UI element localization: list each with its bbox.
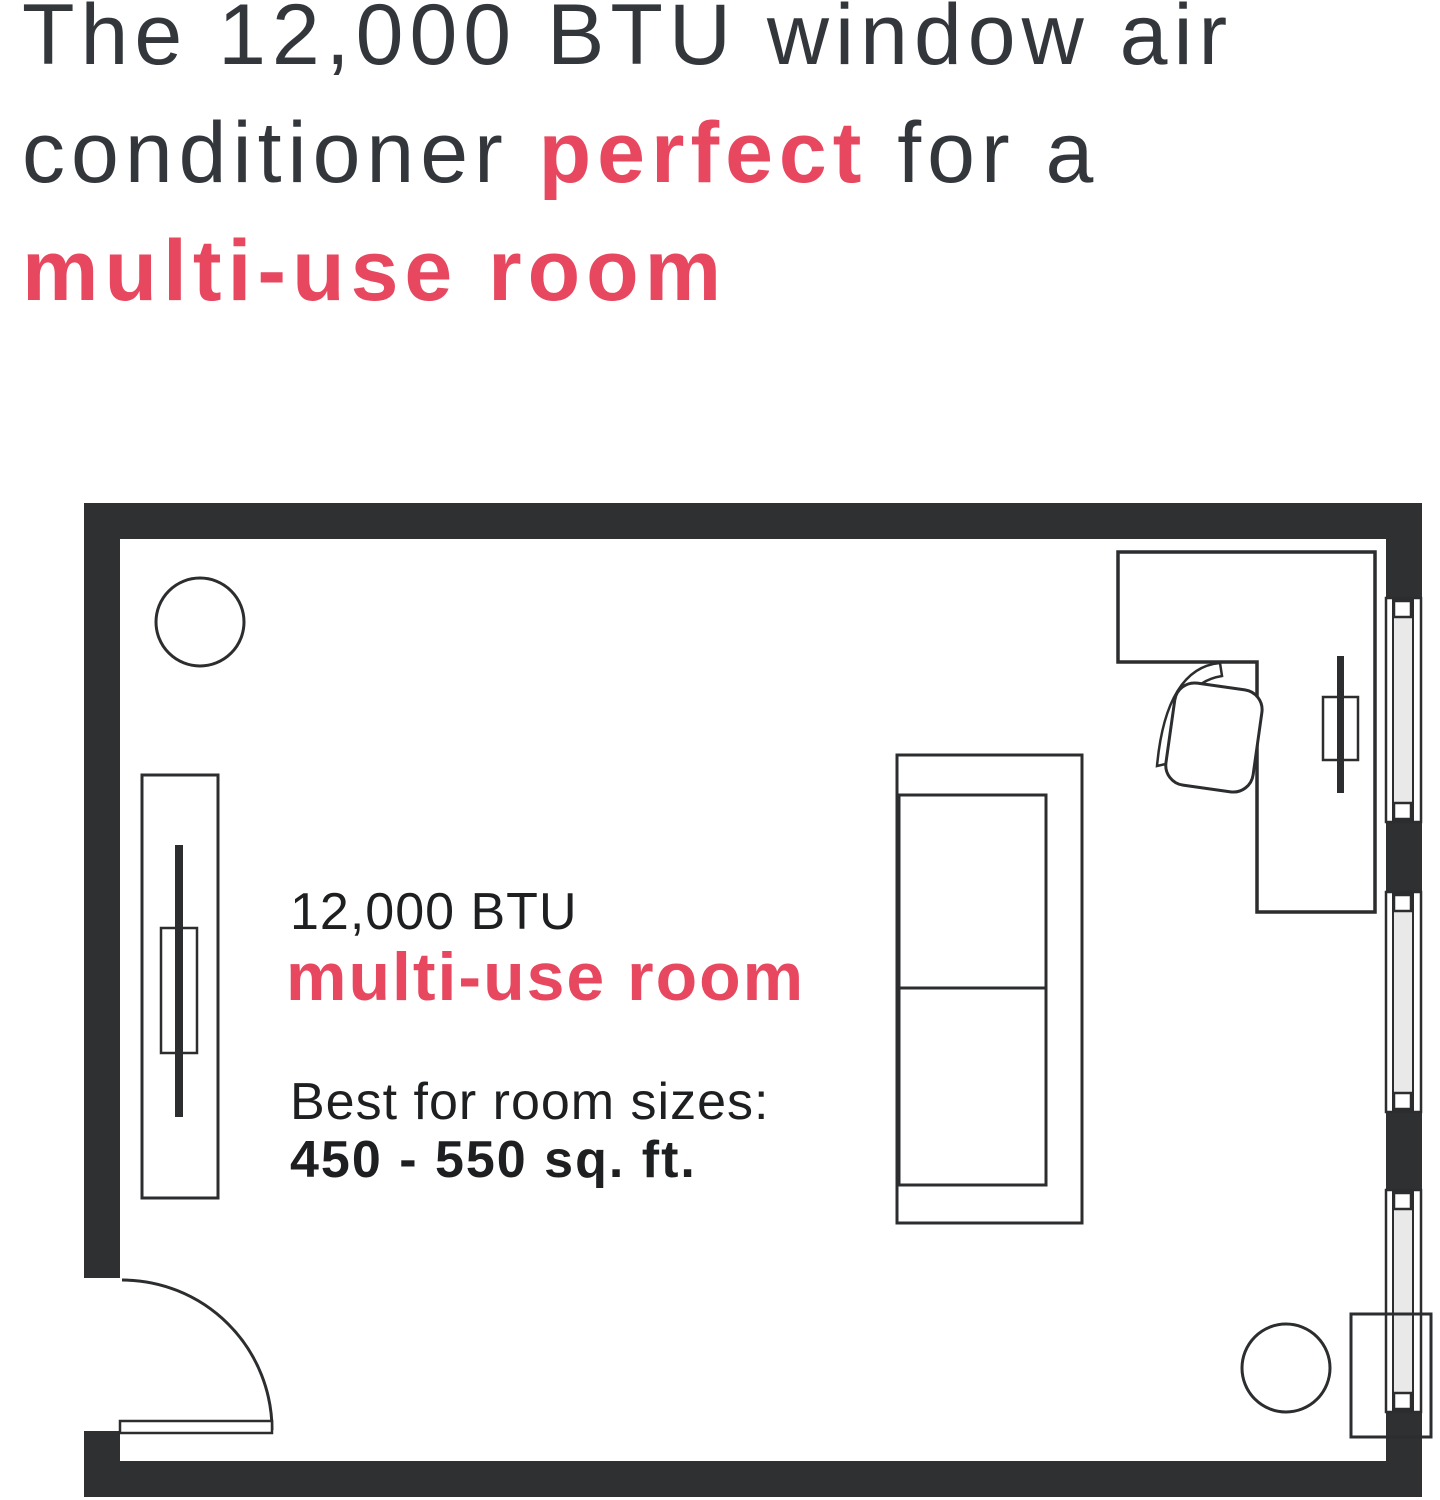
window-1 — [1386, 598, 1421, 822]
window-stop-bottom — [1394, 803, 1411, 819]
window-3 — [1386, 1190, 1421, 1412]
wall-right-bottom — [1386, 1412, 1422, 1497]
sofa — [897, 755, 1082, 1223]
media-console — [142, 775, 218, 1198]
window-glass — [1393, 1191, 1413, 1411]
label-room-type: multi-use room — [286, 938, 805, 1016]
door-leaf — [120, 1421, 272, 1433]
window-stop-bottom — [1394, 1093, 1411, 1109]
desk-area — [1118, 552, 1375, 912]
window-glass — [1393, 599, 1413, 821]
desk-chair-seat — [1163, 680, 1264, 794]
label-btu: 12,000 BTU — [290, 882, 578, 942]
tv-screen — [175, 845, 183, 1117]
window-2 — [1386, 892, 1421, 1112]
window-stop-top — [1394, 601, 1411, 617]
label-size-range: 450 - 550 sq. ft. — [290, 1130, 697, 1190]
side-table-circle — [1242, 1324, 1330, 1412]
wall-bottom — [84, 1461, 1422, 1497]
label-best-for: Best for room sizes: — [290, 1072, 769, 1132]
window-pier-2 — [1386, 1112, 1422, 1190]
door-swing-arc — [122, 1280, 272, 1430]
wall-top — [84, 503, 1422, 539]
sofa-seat — [899, 795, 1046, 1185]
wall-left-upper — [84, 503, 120, 1278]
floor-plan — [0, 0, 1440, 1500]
ac-room-infographic: The 12,000 BTU window air conditioner pe… — [0, 0, 1440, 1500]
monitor-screen — [1337, 656, 1344, 793]
window-stop-top — [1394, 1193, 1411, 1209]
wall-right-top — [1386, 503, 1422, 598]
window-pier-1 — [1386, 822, 1422, 892]
plant-circle — [156, 578, 244, 666]
window-stop-bottom — [1394, 1393, 1411, 1409]
window-stop-top — [1394, 895, 1411, 911]
window-glass — [1393, 893, 1413, 1111]
door — [120, 1280, 272, 1433]
